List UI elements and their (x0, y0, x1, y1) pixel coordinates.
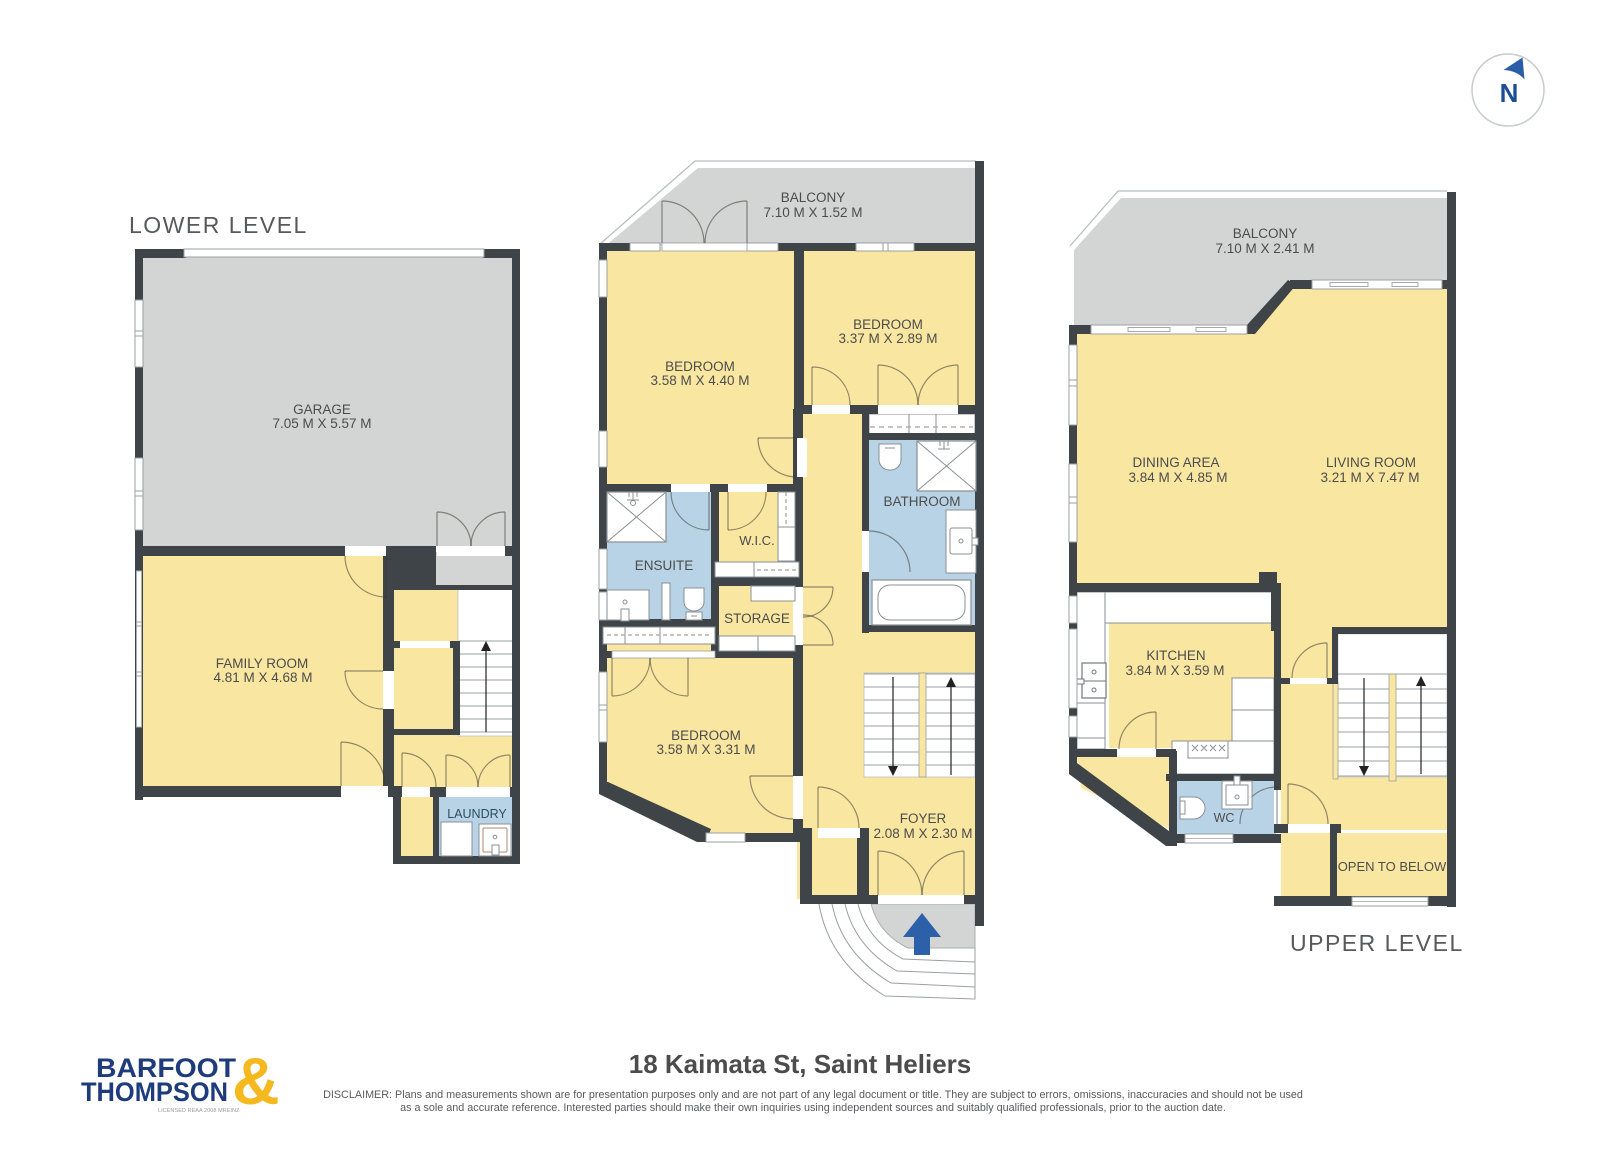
svg-text:FOYER: FOYER (900, 811, 947, 826)
svg-text:ENSUITE: ENSUITE (635, 558, 694, 573)
svg-text:LICENSED REAA 2008 MREINZ: LICENSED REAA 2008 MREINZ (158, 1108, 240, 1114)
svg-text:LOWER LEVEL: LOWER LEVEL (129, 212, 308, 238)
svg-text:KITCHEN: KITCHEN (1146, 648, 1205, 663)
svg-text:LIVING ROOM: LIVING ROOM (1326, 455, 1416, 470)
svg-text:3.84 M X 3.59 M: 3.84 M X 3.59 M (1125, 663, 1224, 678)
svg-text:FAMILY ROOM: FAMILY ROOM (216, 656, 309, 671)
svg-text:WC: WC (1214, 811, 1235, 825)
svg-text:2.08 M X 2.30 M: 2.08 M X 2.30 M (873, 826, 972, 841)
svg-text:UPPER LEVEL: UPPER LEVEL (1290, 930, 1464, 956)
svg-text:N: N (1500, 78, 1519, 108)
svg-text:4.81 M X 4.68 M: 4.81 M X 4.68 M (213, 670, 312, 685)
svg-text:BEDROOM: BEDROOM (853, 317, 923, 332)
svg-text:BALCONY: BALCONY (1233, 226, 1298, 241)
svg-text:as a sole and accurate referen: as a sole and accurate reference. Intere… (400, 1102, 1226, 1114)
svg-text:7.10 M X 2.41 M: 7.10 M X 2.41 M (1215, 241, 1314, 256)
svg-text:18 Kaimata St, Saint Heliers: 18 Kaimata St, Saint Heliers (629, 1049, 971, 1079)
svg-text:3.21 M X 7.47 M: 3.21 M X 7.47 M (1320, 470, 1419, 485)
svg-text:3.58 M X 4.40 M: 3.58 M X 4.40 M (650, 373, 749, 388)
svg-text:3.58 M X 3.31 M: 3.58 M X 3.31 M (656, 742, 755, 757)
svg-text:3.37 M X 2.89 M: 3.37 M X 2.89 M (838, 331, 937, 346)
svg-text:&: & (232, 1044, 280, 1118)
svg-text:BATHROOM: BATHROOM (884, 494, 961, 509)
svg-text:DINING AREA: DINING AREA (1132, 455, 1219, 470)
svg-text:STORAGE: STORAGE (724, 611, 790, 626)
svg-text:BEDROOM: BEDROOM (665, 359, 735, 374)
svg-text:THOMPSON: THOMPSON (81, 1077, 228, 1107)
svg-text:LAUNDRY: LAUNDRY (447, 807, 507, 821)
svg-text:BEDROOM: BEDROOM (671, 728, 741, 743)
svg-text:W.I.C.: W.I.C. (739, 533, 774, 548)
svg-text:DISCLAIMER: Plans and measurem: DISCLAIMER: Plans and measurements shown… (323, 1089, 1303, 1101)
svg-text:7.05 M X 5.57 M: 7.05 M X 5.57 M (272, 416, 371, 431)
svg-text:OPEN TO BELOW: OPEN TO BELOW (1338, 859, 1447, 874)
svg-text:3.84 M X 4.85 M: 3.84 M X 4.85 M (1128, 470, 1227, 485)
svg-text:7.10 M X 1.52 M: 7.10 M X 1.52 M (763, 205, 862, 220)
svg-text:GARAGE: GARAGE (293, 402, 351, 417)
svg-text:BALCONY: BALCONY (781, 190, 846, 205)
